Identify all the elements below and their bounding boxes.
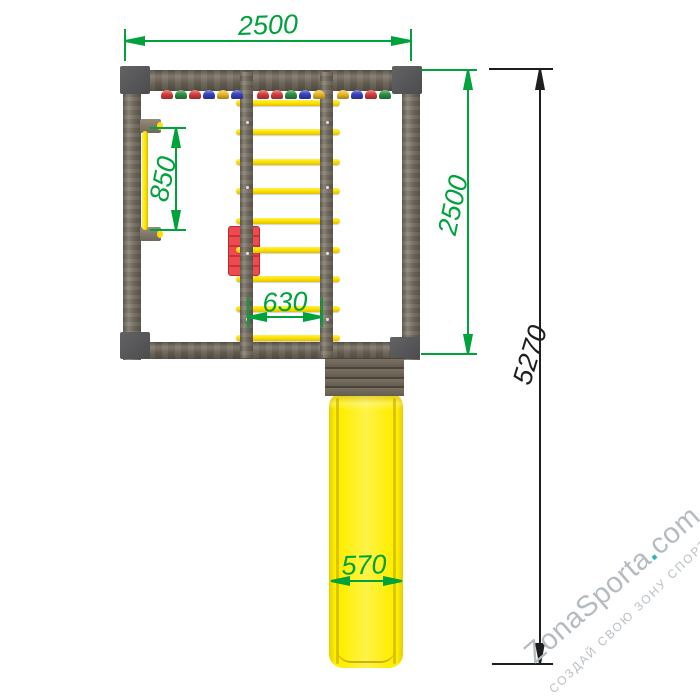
dimension-label-slide-width: 570	[324, 550, 405, 581]
dimension-label-ladder-span: 630	[245, 287, 326, 318]
drawing-canvas: 2500 2500 850 630 570 5270 ZonaSporta.co…	[0, 0, 700, 700]
